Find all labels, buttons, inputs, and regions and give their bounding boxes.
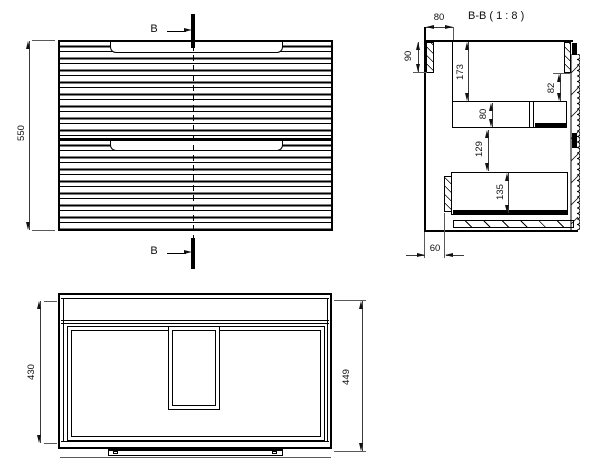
plan-side-wall-right	[327, 299, 328, 441]
plan-front-notch-left	[113, 451, 118, 455]
dim-449-arrow-up	[359, 301, 363, 309]
plan-side-wall-left	[63, 299, 64, 441]
plan-front-base-line	[60, 457, 331, 458]
dim-430-arrow-down	[37, 435, 41, 443]
dim-430-ext-top	[44, 301, 57, 302]
dim-449-arrow-down	[359, 443, 363, 451]
dim-449-line	[362, 301, 363, 451]
plan-back-inner-line	[61, 298, 329, 299]
dim-449-ext-bottom	[334, 451, 366, 452]
plan-sink-cutout-inner	[172, 330, 216, 406]
plan-view: 430 449	[0, 0, 600, 470]
plan-back-band-line2	[61, 323, 329, 324]
dim-430-line	[40, 301, 41, 443]
dim-430-label: 430	[26, 360, 38, 384]
dim-430-arrow-up	[37, 301, 41, 309]
drawing-canvas: B B 550 B-B ( 1 : 8 )	[0, 0, 600, 470]
dim-449-label: 449	[341, 365, 353, 389]
plan-front-line	[61, 441, 329, 442]
plan-drawer-front-strip	[108, 449, 283, 456]
plan-back-band-line1	[61, 320, 329, 322]
dim-430-ext-bottom	[44, 443, 57, 444]
plan-front-notch-right	[272, 451, 277, 455]
